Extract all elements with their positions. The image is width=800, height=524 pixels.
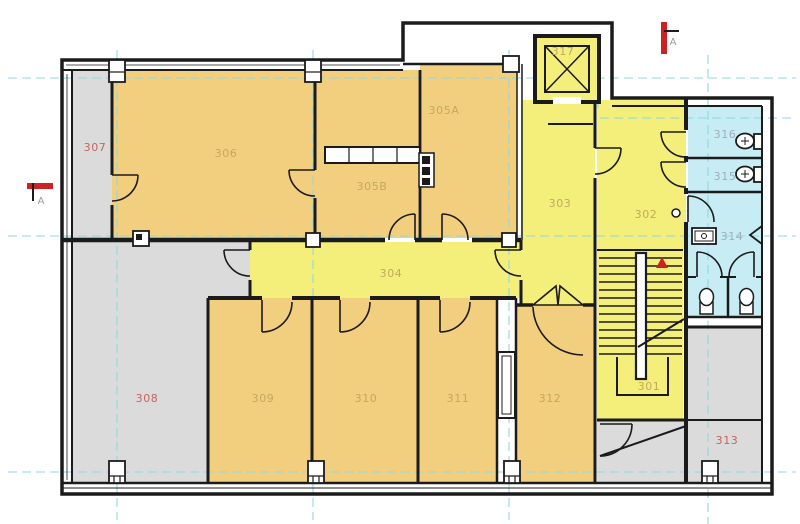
room-310-area <box>312 298 418 483</box>
toilet-icon-stall-1 <box>700 289 714 315</box>
lobby-area <box>73 240 250 298</box>
sink-icon-314 <box>692 228 716 244</box>
room-312-label: 312 <box>539 392 562 405</box>
column-marker-icon-mid-1 <box>133 231 149 246</box>
room-313-area <box>688 327 762 483</box>
room-305A-area <box>420 64 517 238</box>
room-303-label: 303 <box>549 197 572 210</box>
toilet-icon-stall-2 <box>740 289 754 315</box>
room-301-label: 301 <box>638 380 661 393</box>
toilet-icon-316 <box>736 134 762 150</box>
handle-dot-302 <box>672 209 680 217</box>
column-marker-icon-top-1 <box>109 60 125 82</box>
section-top-letter: A <box>670 37 677 48</box>
column-marker-icon-top-2 <box>305 60 321 82</box>
room-306-label: 306 <box>215 147 238 160</box>
room-316-label: 316 <box>714 128 737 141</box>
room-317-label: 317 <box>552 45 575 58</box>
floor-plan-drawing: 307 306 305B 305A 317 303 302 304 308 30… <box>0 0 800 524</box>
appliance-burners <box>422 156 430 185</box>
room-305A-label: 305A <box>429 104 460 117</box>
column-marker-icon-top-3 <box>503 56 519 72</box>
room-307-label: 307 <box>84 141 107 154</box>
section-cut-marker-icon-left: A <box>27 183 53 207</box>
column-marker-icon-bottom-4 <box>702 461 718 483</box>
room-306-area <box>112 70 315 238</box>
room-309-area <box>208 298 312 483</box>
floor-plan-canvas: 307 306 305B 305A 317 303 302 304 308 30… <box>0 0 800 524</box>
column-marker-icon-bottom-2 <box>308 461 324 483</box>
stair-stringer <box>636 253 646 379</box>
room-310-label: 310 <box>355 392 378 405</box>
column-marker-icon-mid-3 <box>502 233 516 247</box>
room-304-label: 304 <box>380 267 403 280</box>
room-308-area <box>73 298 208 483</box>
room-302-area <box>597 100 686 250</box>
toilet-icon-315 <box>736 167 762 183</box>
room-309-label: 309 <box>252 392 275 405</box>
room-305B-label: 305B <box>357 180 388 193</box>
room-314-label: 314 <box>721 230 744 243</box>
column-marker-icon-mid-2 <box>306 233 320 247</box>
room-311-label: 311 <box>447 392 470 405</box>
room-302-label: 302 <box>635 208 658 221</box>
section-left-letter: A <box>38 196 45 207</box>
section-cut-marker-icon-top: A <box>661 22 679 54</box>
room-313-label: 313 <box>716 434 739 447</box>
cavity-wall-305A-303 <box>517 64 522 240</box>
room-315-label: 315 <box>714 170 737 183</box>
room-307-area <box>73 70 112 238</box>
column-marker-icon-bottom-1 <box>109 461 125 483</box>
column-marker-icon-bottom-3 <box>504 461 520 483</box>
room-308-label: 308 <box>136 392 159 405</box>
duct-shaft <box>498 352 515 418</box>
elevator-door-opening <box>553 97 581 104</box>
